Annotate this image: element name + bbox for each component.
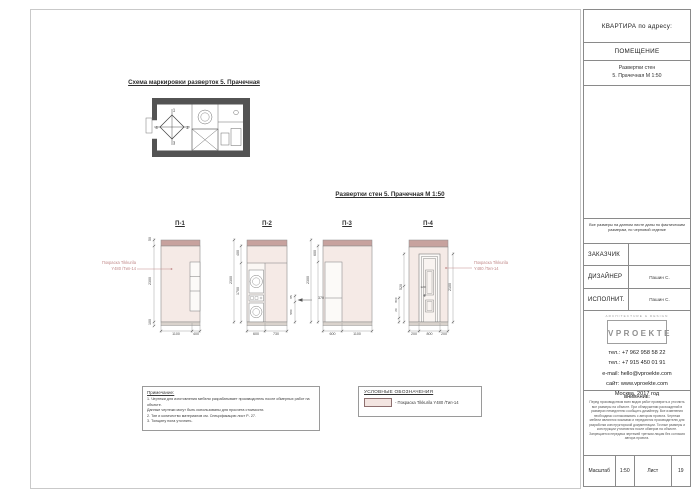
legend-box: УСЛОВНЫЕ ОБОЗНАЧЕНИЯ - Покраска Tikkuril… [358, 386, 482, 417]
titleblock-designer-row: ДИЗАЙНЕР Пашин С. [584, 266, 690, 289]
elevation-p3-label: П-3 [335, 221, 359, 227]
dim-label: 200 [435, 332, 453, 336]
elevation-marker: 1 2 3 4 [154, 108, 190, 146]
dim-label: 600 [313, 244, 317, 262]
phone-2: тел.: +7 915 450 01 91 [584, 358, 690, 368]
titleblock-room: ПОМЕЩЕНИЕ [584, 43, 690, 61]
dim-label: 1100 [167, 332, 185, 336]
dim-label: 100 [148, 313, 152, 331]
dim-label: 1700 [236, 282, 240, 300]
dim-label: 520 [399, 278, 403, 296]
titleblock-footer: Масштаб 1:50 Лист 19 [584, 456, 690, 486]
dim-label: 400 [187, 332, 205, 336]
customer-value [629, 244, 690, 265]
marking-scheme-title: Схема маркировки разверток 5. Прачечная [124, 79, 264, 86]
titleblock: КВАРТИРА по адресу: ПОМЕЩЕНИЕ Развертки … [583, 9, 691, 487]
dim-label: 370 [312, 296, 330, 300]
designer-value: Пашин С. [629, 266, 690, 288]
company-block: ARCHITECTURE & DESIGN VPROEKTE тел.: +7 … [584, 311, 690, 391]
elevation-p3 [323, 240, 372, 326]
dim-label: 1100 [348, 332, 366, 336]
titleblock-executor-row: ИСПОЛНИТ. Пашин С. [584, 289, 690, 311]
warning-block: ВНИМАНИЕ: Перед производством всех видов… [584, 391, 690, 456]
cabinet [325, 262, 342, 322]
warning-title: ВНИМАНИЕ: [588, 394, 686, 399]
elevation-p2 [247, 240, 312, 326]
dim-label: 2300 [148, 272, 152, 290]
company-logo: VPROEKTE [607, 320, 667, 344]
dryer-icon [249, 270, 264, 293]
notes-title: Примечание: [147, 390, 315, 397]
marker-number-2: 2 [186, 125, 189, 130]
dim-label: 580 [289, 306, 293, 318]
drawing-sheet: Схема маркировки разверток 5. Прачечная … [0, 0, 696, 495]
note-line: 1. Чертежи для изготовления мебели разра… [147, 397, 315, 408]
floor-plan: 1 2 3 4 [140, 95, 270, 165]
warning-text: Перед производством всех видов работ про… [588, 400, 686, 441]
elevation-p4 [409, 240, 448, 326]
customer-label: ЗАКАЗЧИК [584, 244, 629, 265]
plan-fixtures [192, 105, 243, 151]
legend-item-label: - Покраска Tikkurila Y480 /Тип-14 [395, 400, 459, 405]
shelf-unit [190, 262, 200, 311]
dim-label: 730 [267, 332, 285, 336]
dim-label: 50 [148, 230, 152, 248]
sheet-label: Лист [635, 456, 672, 486]
dim-label: 2100 [448, 278, 452, 296]
titleblock-customer-row: ЗАКАЗЧИК [584, 244, 690, 266]
dim-label: 600 [247, 332, 265, 336]
sheet-number: 19 [672, 456, 691, 486]
titleblock-sheet-name: Развертки стен 5. Прачечная М 1:50 [584, 61, 690, 86]
dim-label: 400 [236, 244, 240, 262]
dim-label: 85 [289, 291, 293, 303]
email: e-mail: hello@vproekte.com [584, 369, 690, 379]
washer-top-view-icon [198, 110, 212, 124]
elevation-p2-label: П-2 [255, 221, 279, 227]
scale-value: 1:50 [616, 456, 636, 486]
titleblock-empty-cell [584, 86, 690, 219]
legend-swatch [364, 398, 392, 407]
titleblock-address: КВАРТИРА по адресу: [584, 10, 690, 43]
paint-annotation-p1: Покраска Tikkurila Y480 /Тип-14 [94, 260, 136, 272]
control-panel [249, 295, 264, 301]
elevations-drawing [90, 218, 570, 348]
radiator-niche [146, 118, 152, 133]
dim-label: 2300 [229, 271, 233, 289]
dim-label: 600 [324, 332, 342, 336]
washer-icon [249, 303, 264, 322]
elevations-title: Развертки стен 5. Прачечная М 1:50 [319, 191, 461, 198]
shaft-cross-icon [192, 129, 218, 151]
paint-annotation-p4: Покраска Tikkurila Y480 /Тип-14 [474, 260, 544, 272]
notes-box: Примечание: 1. Чертежи для изготовления … [142, 386, 320, 431]
website: сайт: www.vproekte.com [584, 379, 690, 389]
phone-1: тел.: +7 962 958 58 22 [584, 348, 690, 358]
company-tagline: ARCHITECTURE & DESIGN [584, 314, 690, 318]
elevation-p1-label: П-1 [168, 221, 192, 227]
elevation-p4-label: П-4 [416, 221, 440, 227]
legend-title: УСЛОВНЫЕ ОБОЗНАЧЕНИЯ [364, 390, 476, 395]
dim-label: 120 [417, 285, 429, 289]
executor-value: Пашин С. [629, 289, 690, 310]
marker-number-4: 4 [155, 125, 158, 130]
elevation-p1 [161, 240, 200, 326]
door-handle-icon [424, 295, 425, 296]
designer-label: ДИЗАЙНЕР [584, 266, 629, 288]
scale-label: Масштаб [584, 456, 616, 486]
marker-number-3: 3 [173, 141, 176, 146]
marker-number-1: 1 [173, 108, 176, 113]
dim-label: 20 [394, 304, 398, 316]
titleblock-note: Все размеры на данном листе даны по факт… [584, 219, 690, 244]
executor-label: ИСПОЛНИТ. [584, 289, 629, 310]
dim-label: 2300 [306, 271, 310, 289]
note-line: 3. Толщину пола уточнить. [147, 419, 315, 425]
